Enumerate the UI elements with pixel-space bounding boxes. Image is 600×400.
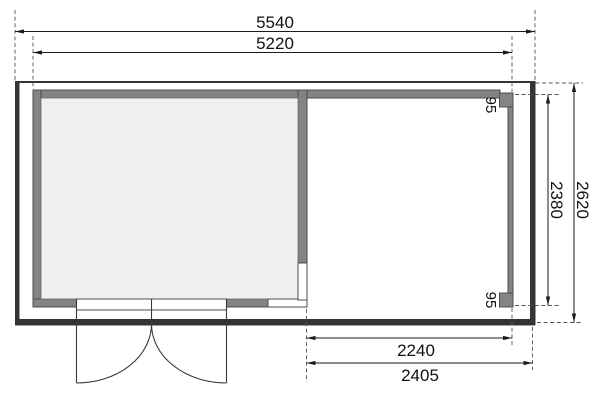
front-wall-right-segment <box>227 299 269 307</box>
arrowhead-width-overall-right <box>526 29 535 33</box>
dim-label-height-overall: 2620 <box>573 181 592 219</box>
room-wall-right <box>298 90 307 263</box>
roof-edge-right <box>530 81 536 325</box>
arrowhead-terrace-inner-right <box>503 336 512 340</box>
roof-edge-top <box>15 81 535 83</box>
dim-label-width-inner: 5220 <box>256 34 294 53</box>
window-right-wall <box>298 263 307 300</box>
arrowhead-terrace-overall-left <box>307 361 316 365</box>
terrace-post-top <box>500 93 514 107</box>
arrowhead-terrace-overall-right <box>524 361 533 365</box>
dim-label-width-overall: 5540 <box>256 13 294 32</box>
roof-edge-bottom <box>15 319 535 326</box>
dim-label-post-top: 95 <box>482 97 499 114</box>
dim-label-terrace-inner: 2240 <box>397 341 435 360</box>
roof-edge-left <box>15 81 20 325</box>
dim-label-terrace-overall: 2405 <box>401 366 439 385</box>
arrowhead-width-inner-right <box>503 50 512 54</box>
dim-label-post-bottom: 95 <box>482 292 499 309</box>
room-wall-left <box>33 90 41 307</box>
door-swing-arc-right <box>152 324 227 383</box>
arrowhead-height-overall-top <box>572 83 576 92</box>
terrace-side-beam <box>508 107 513 293</box>
arrowhead-height-inner-bottom <box>546 297 550 306</box>
floor-plan-canvas: 5540 5220 2380 2620 2240 2405 95 95 <box>0 0 600 400</box>
terrace-post-bottom <box>500 293 514 307</box>
arrowhead-height-overall-bottom <box>572 314 576 323</box>
arrowhead-width-overall-left <box>15 29 24 33</box>
room-floor <box>41 98 298 299</box>
floor-plan-drawing: 5540 5220 2380 2620 2240 2405 95 95 <box>0 0 600 400</box>
arrowhead-width-inner-left <box>33 50 42 54</box>
dim-label-height-inner: 2380 <box>547 181 566 219</box>
back-wall <box>33 90 500 98</box>
arrowhead-terrace-inner-left <box>307 336 316 340</box>
arrowhead-height-inner-top <box>546 95 550 104</box>
front-wall-left-segment <box>33 299 77 307</box>
door-swing-arc-left <box>77 324 152 383</box>
